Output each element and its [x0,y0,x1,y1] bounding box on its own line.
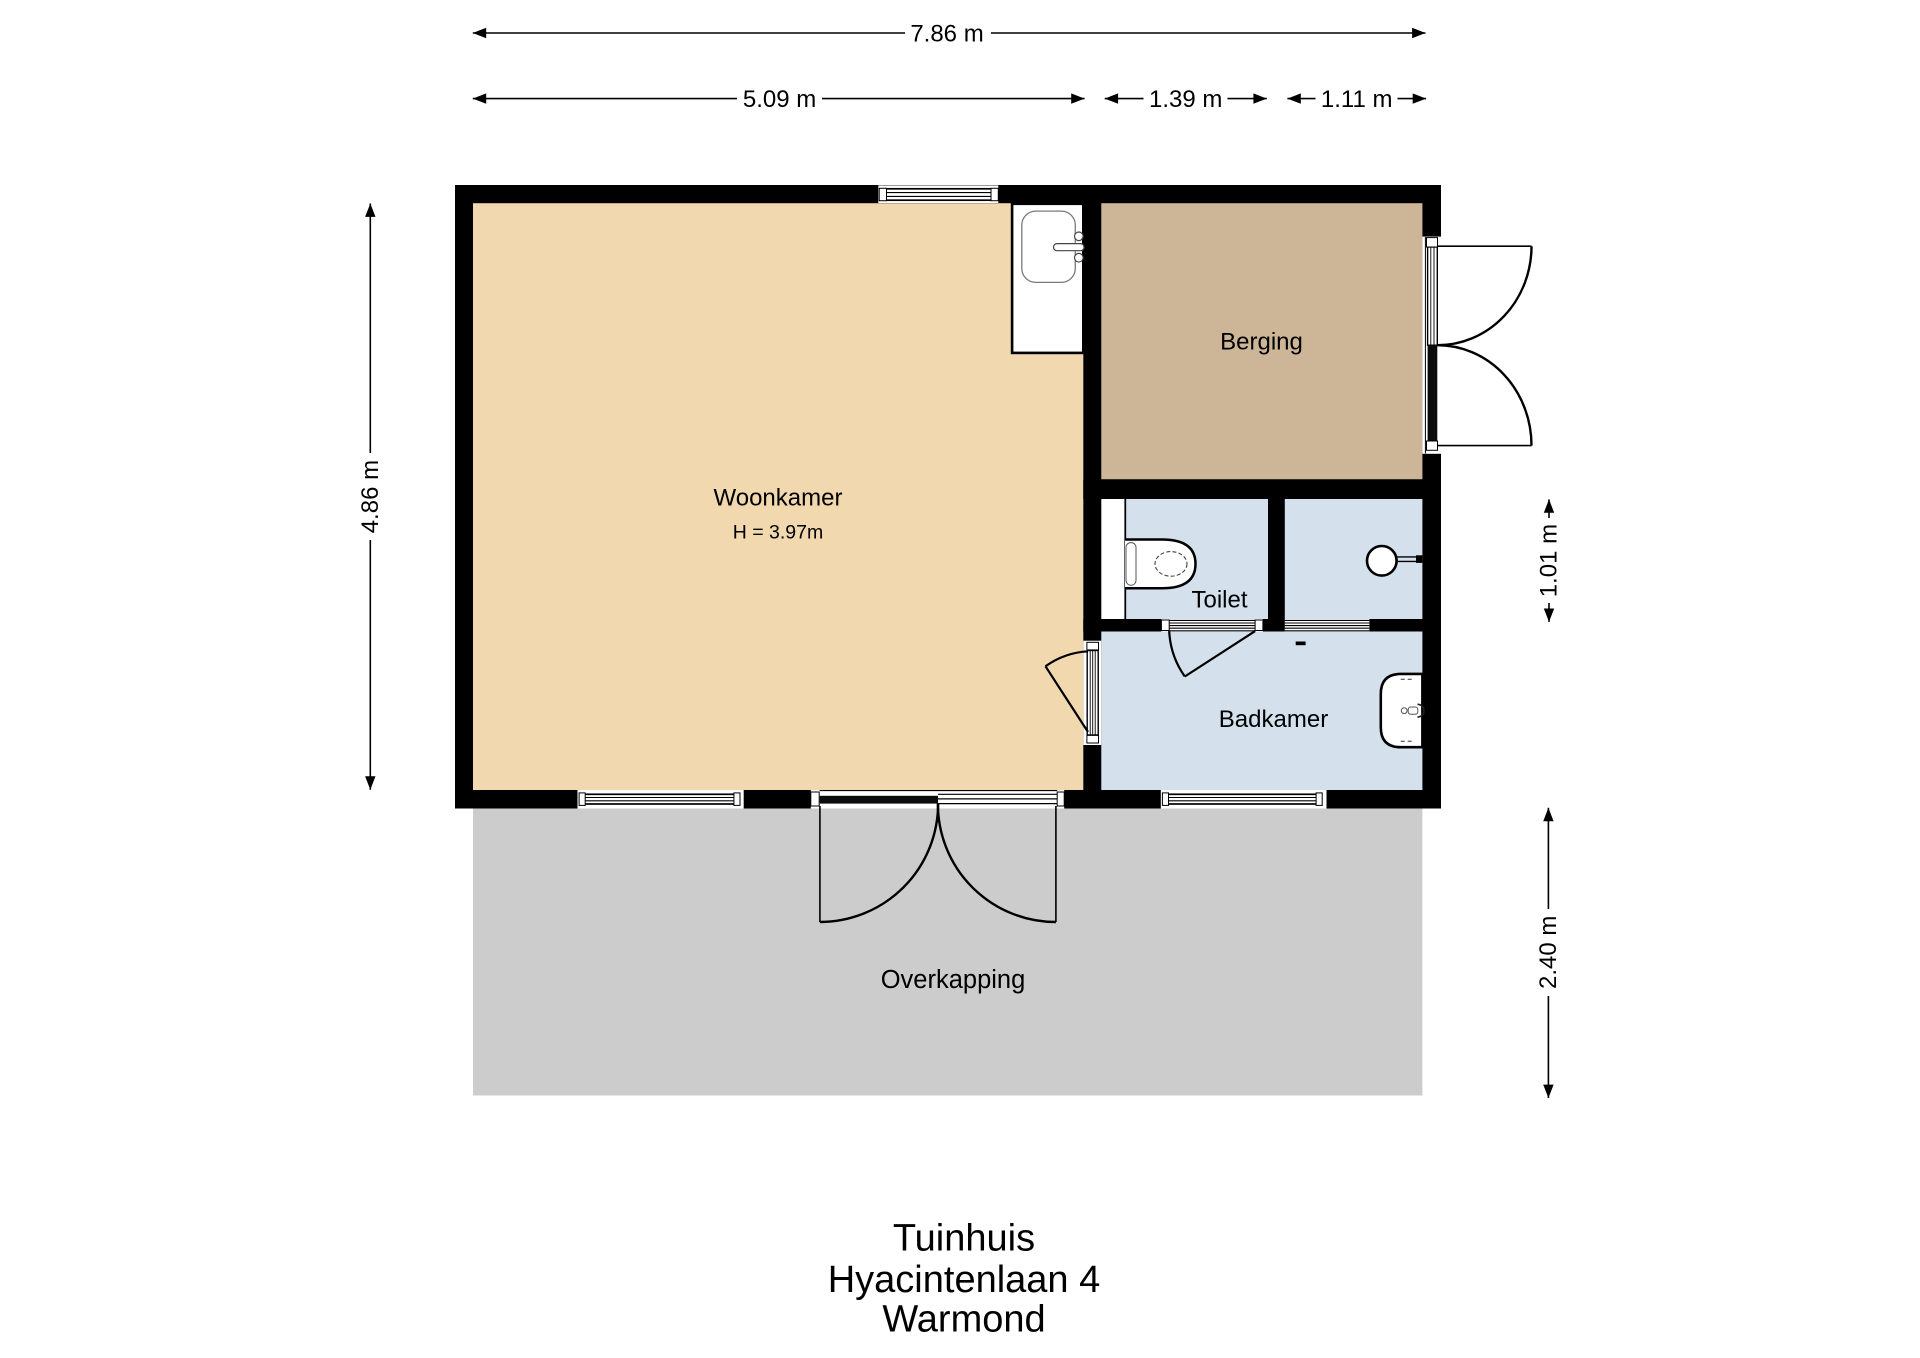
svg-text:H = 3.97m: H = 3.97m [733,522,824,544]
svg-text:Woonkamer: Woonkamer [714,485,843,512]
svg-text:5.09 m: 5.09 m [743,86,816,113]
svg-text:Berging: Berging [1220,329,1303,356]
svg-text:Hyacintenlaan 4: Hyacintenlaan 4 [828,1259,1101,1301]
svg-text:2.40 m: 2.40 m [1535,916,1562,989]
svg-text:Warmond: Warmond [882,1299,1045,1341]
svg-text:4.86 m: 4.86 m [357,460,384,533]
svg-text:1.01 m: 1.01 m [1536,524,1563,597]
svg-text:1.11 m: 1.11 m [1321,86,1393,113]
svg-text:Overkapping: Overkapping [881,966,1026,994]
svg-text:1.39 m: 1.39 m [1149,86,1222,113]
svg-text:Tuinhuis: Tuinhuis [893,1218,1035,1260]
svg-text:Toilet: Toilet [1191,587,1247,614]
svg-text:7.86 m: 7.86 m [910,21,983,48]
svg-text:Badkamer: Badkamer [1219,706,1328,733]
